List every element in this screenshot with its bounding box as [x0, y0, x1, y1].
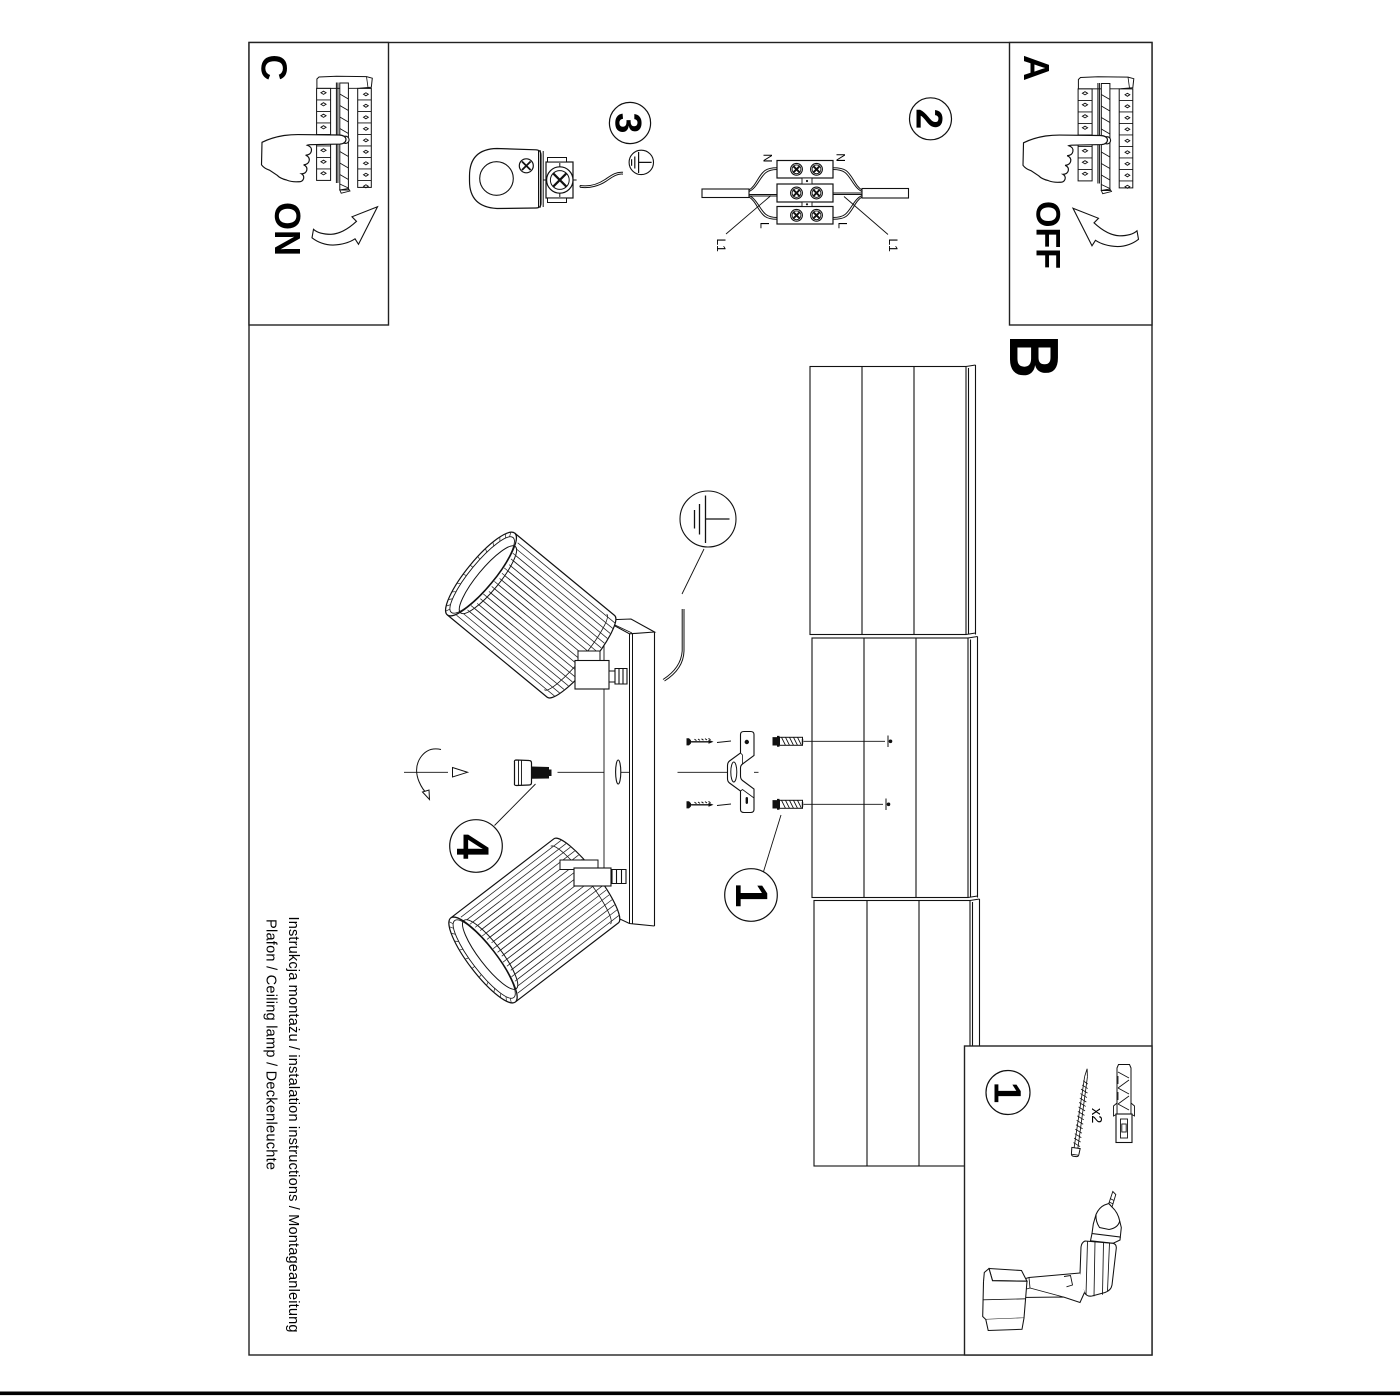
- svg-text:C: C: [254, 55, 295, 81]
- svg-text:1: 1: [986, 1082, 1028, 1103]
- svg-text:L: L: [836, 222, 850, 229]
- svg-text:A: A: [1016, 55, 1057, 81]
- svg-text:x2: x2: [1088, 1108, 1104, 1123]
- svg-text:ON: ON: [267, 202, 308, 256]
- svg-text:4: 4: [447, 834, 498, 859]
- svg-text:L1: L1: [886, 239, 900, 253]
- svg-text:L: L: [758, 222, 772, 229]
- svg-text:B: B: [995, 335, 1073, 378]
- svg-text:3: 3: [608, 113, 649, 134]
- svg-text:N: N: [834, 153, 848, 162]
- svg-text:1: 1: [726, 882, 777, 907]
- svg-text:Plafon / Ceiling lamp / Decken: Plafon / Ceiling lamp / Deckenleuchte: [262, 919, 278, 1170]
- svg-text:OFF: OFF: [1029, 201, 1067, 269]
- svg-text:N: N: [761, 154, 775, 163]
- svg-text:Instrukcja montażu / instalati: Instrukcja montażu / instalation instruc…: [285, 917, 301, 1333]
- svg-text:2: 2: [909, 109, 950, 130]
- svg-text:L1: L1: [714, 239, 728, 253]
